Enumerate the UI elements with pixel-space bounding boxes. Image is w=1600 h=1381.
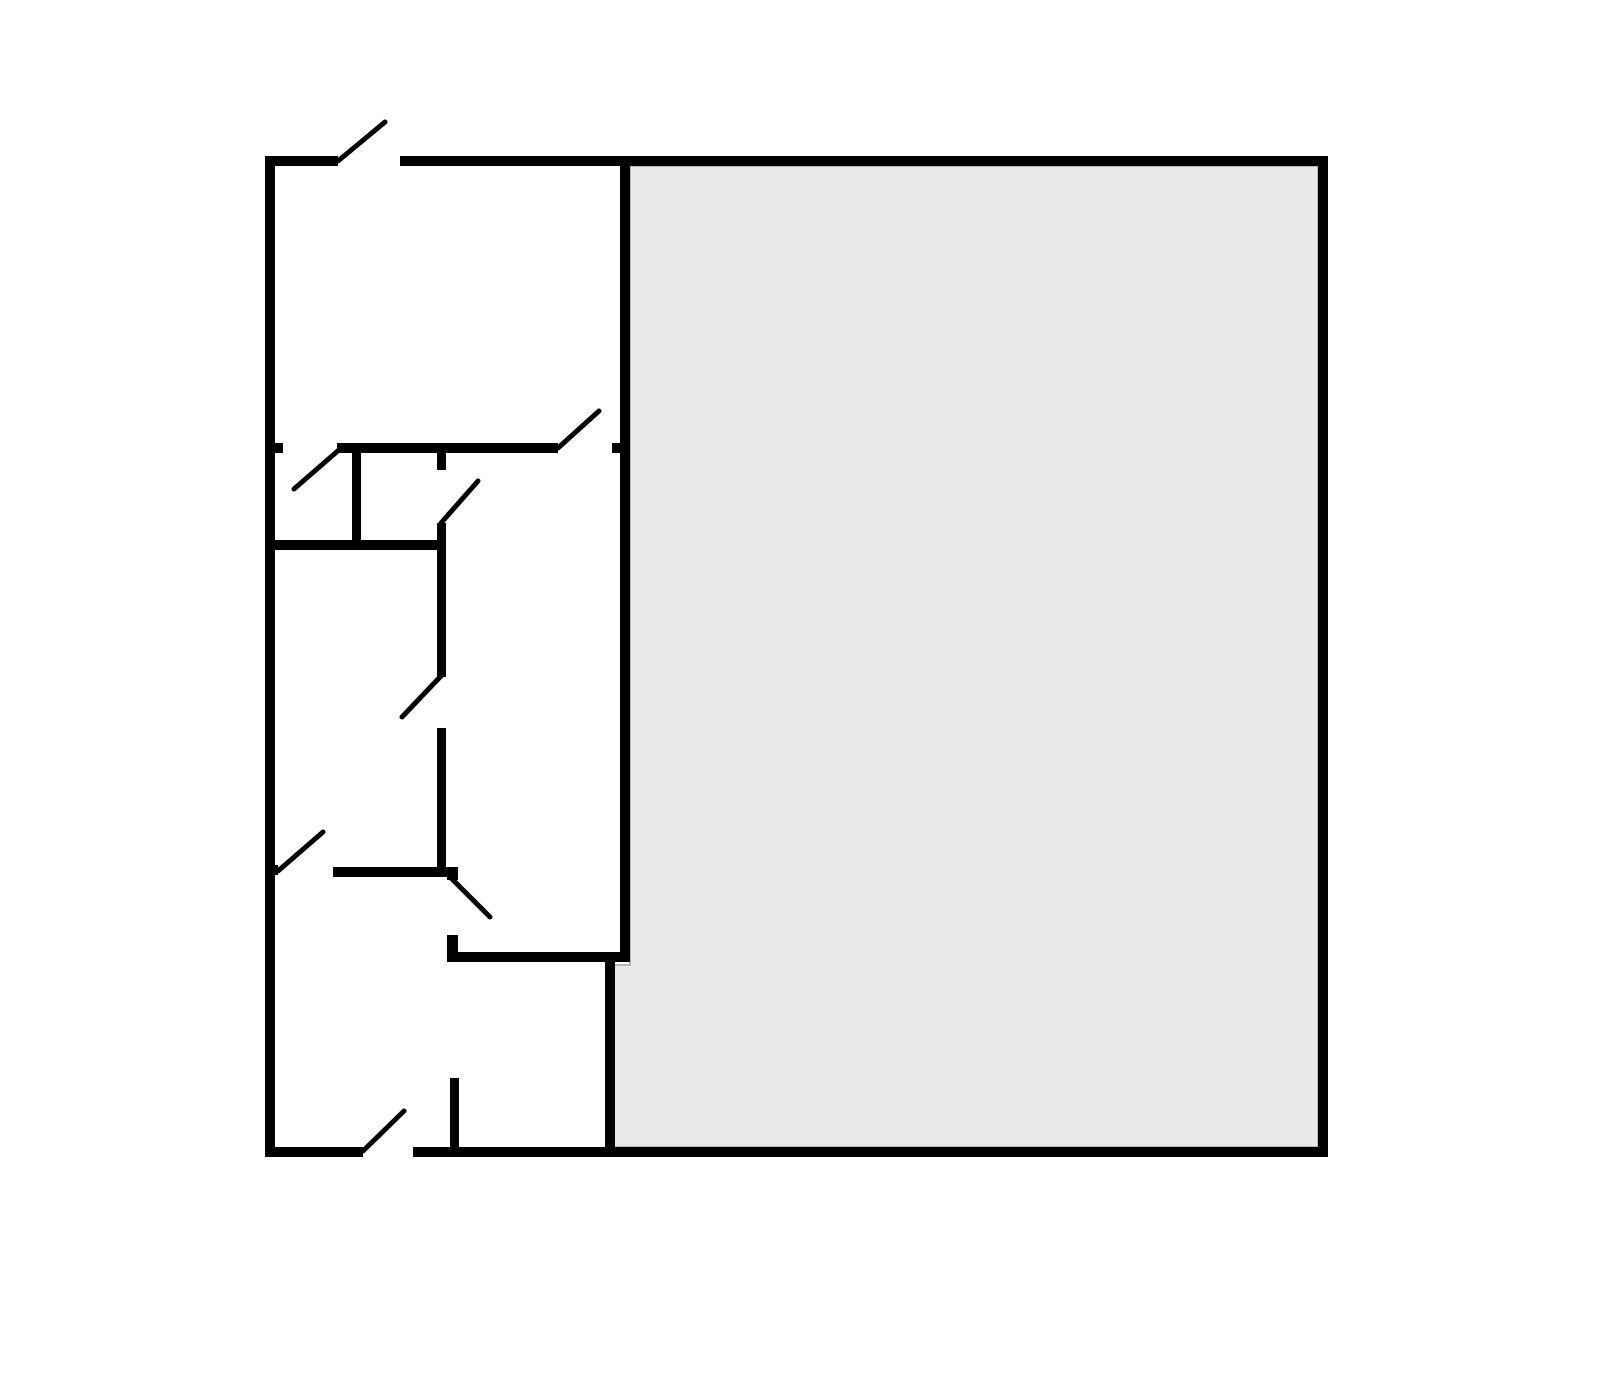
wall-mid-left-horizontal [265, 540, 446, 550]
wall-upper-divider-right-stub [612, 443, 630, 453]
floor-plan-canvas [0, 0, 1600, 1381]
door-swing-hall-upper [441, 481, 478, 523]
door-swing-lower-hall [452, 879, 490, 917]
wall-outer-left [265, 156, 275, 1157]
wall-outer-bottom-main [413, 1147, 1328, 1157]
wall-outer-top-main [400, 156, 1328, 166]
floor-plan-svg [0, 0, 1600, 1381]
door-swing-closet [294, 449, 340, 489]
shaded-room-area [613, 166, 1318, 1147]
wall-outer-bottom-left [265, 1147, 363, 1157]
door-swing-mid-left-room [278, 832, 323, 871]
wall-outer-top-left [265, 156, 338, 166]
wall-hall-vertical-low [437, 728, 446, 877]
wall-lower-divider-vertical [605, 955, 615, 1157]
door-swing-bottom-entry [363, 1111, 404, 1151]
door-swing-top-entry [338, 122, 385, 161]
wall-center-divider-vertical [620, 156, 630, 962]
wall-bottom-room-stub [450, 1078, 459, 1157]
door-swing-upper-room [558, 411, 599, 448]
door-swing-hall-lower [402, 676, 441, 717]
wall-closet-vertical [352, 453, 361, 547]
wall-upper-divider-mid [337, 443, 558, 453]
wall-lower-left-horizontal [333, 867, 458, 877]
wall-upper-divider-left-stub [265, 443, 283, 453]
wall-step-horizontal [450, 952, 630, 962]
wall-outer-right [1318, 156, 1328, 1157]
wall-hall-vertical-top-stub [437, 453, 446, 470]
wall-hall-vertical-mid [437, 523, 446, 677]
